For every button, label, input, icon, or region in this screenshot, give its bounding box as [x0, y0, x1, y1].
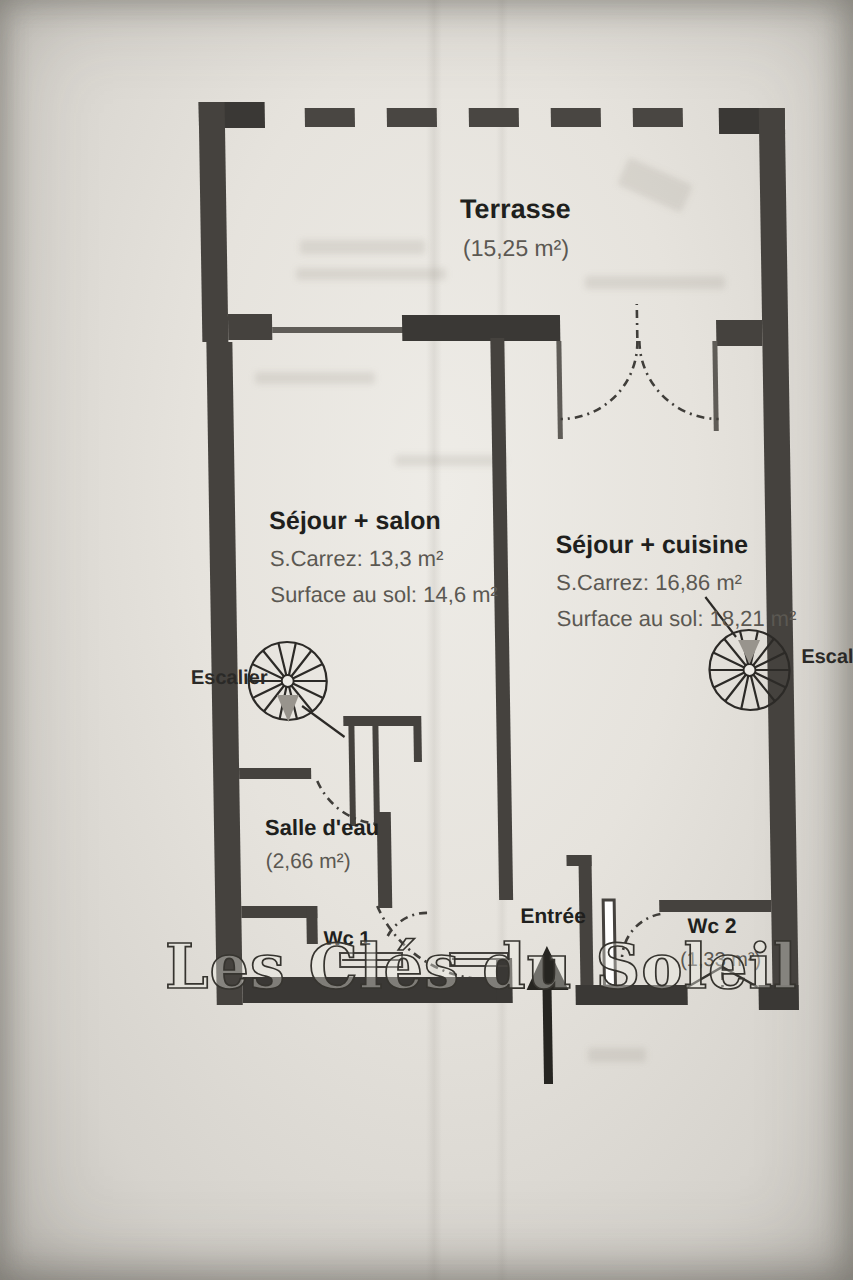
escalier-right-label: Escalier	[801, 645, 853, 667]
sejour-cuisine-surface: Surface au sol: 18,21 m²	[557, 606, 797, 631]
room-labels: Terrasse (15,25 m²) Séjour + salon S.Car…	[183, 194, 853, 970]
terrace-dashed-boundary	[305, 108, 683, 127]
sejour-salon-label: Séjour + salon	[269, 506, 441, 534]
sejour-cuisine-label: Séjour + cuisine	[555, 530, 748, 558]
entree-label: Entrée	[520, 904, 586, 927]
terrace-walls	[199, 102, 789, 348]
sejour-cuisine-carrez: S.Carrez: 16,86 m²	[556, 570, 742, 595]
watermark-text: Les Clés du Soleil	[165, 930, 798, 1003]
salle-eau-walls	[238, 716, 424, 908]
salle-eau-area: (2,66 m²)	[265, 849, 351, 872]
salle-eau-label: Salle d'eau	[265, 815, 379, 840]
sejour-salon-carrez: S.Carrez: 13,3 m²	[270, 546, 444, 571]
wc2-walls	[659, 900, 771, 912]
interior-dividing-wall	[490, 338, 513, 900]
escalier-left-label: Escalier	[191, 666, 268, 688]
terrasse-label: Terrasse	[460, 194, 571, 224]
terrace-double-door-swing	[559, 304, 719, 419]
sejour-salon-surface: Surface au sol: 14,6 m²	[270, 582, 498, 607]
spiral-staircase-icon	[248, 642, 344, 737]
floor-plan: Terrasse (15,25 m²) Séjour + salon S.Car…	[0, 0, 853, 1280]
terrasse-area: (15,25 m²)	[463, 235, 569, 261]
